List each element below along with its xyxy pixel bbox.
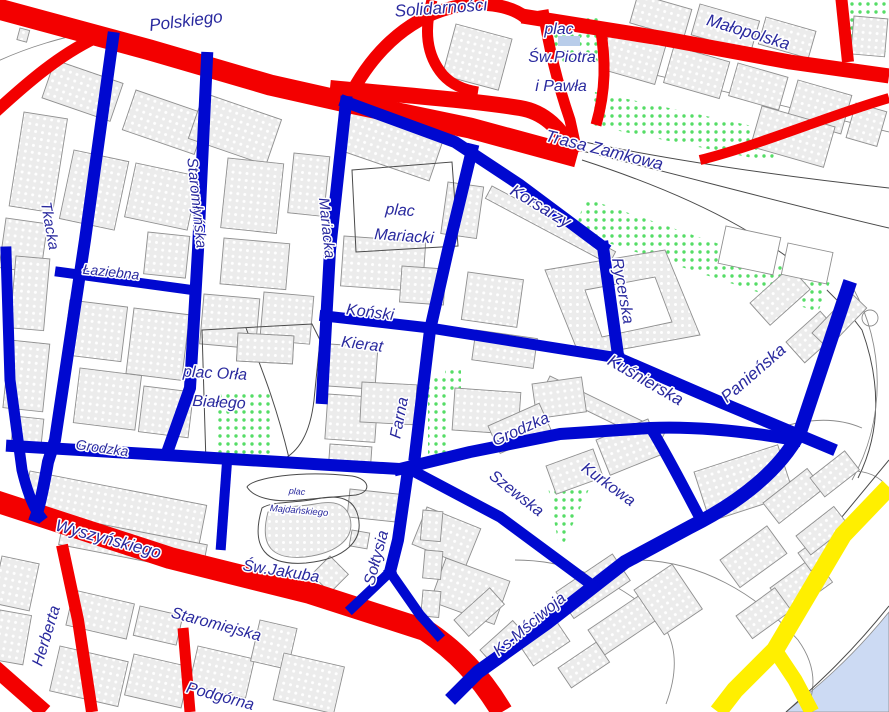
street-label-plac-orla-2: Białego <box>192 393 246 413</box>
map-viewport[interactable]: PolskiegoSolidarnościplacŚw.Piotrai Pawł… <box>0 0 889 712</box>
street-label-plac-sw-piotra-1: plac <box>543 21 573 38</box>
street-label-plac-orla-1: plac Orła <box>182 364 248 384</box>
street-label-plac-majdanskiego-1: plac <box>287 486 306 498</box>
street-label-panienska: Panieńska <box>717 340 789 406</box>
street-label-plac-sw-piotra-3: i Pawła <box>535 78 587 95</box>
street-label-solidarnosci: Solidarności <box>394 0 489 21</box>
street-label-polskiego: Polskiego <box>148 7 223 35</box>
city-map[interactable]: PolskiegoSolidarnościplacŚw.Piotrai Pawł… <box>0 0 889 712</box>
street-label-plac-mariacki-1: plac <box>384 201 415 220</box>
street-label-plac-sw-piotra-2: Św.Piotra <box>528 47 596 66</box>
